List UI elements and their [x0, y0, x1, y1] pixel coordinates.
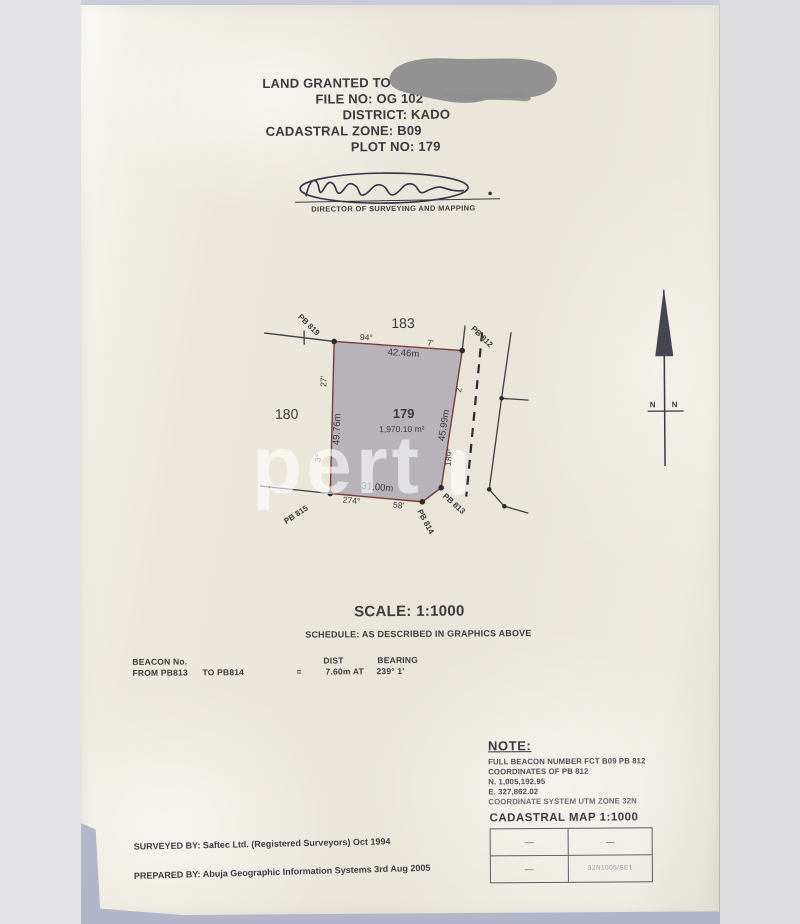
note-line-3: N. 1,005,192.95: [488, 777, 545, 787]
cadastral-zone-line: CADASTRAL ZONE: B09: [266, 123, 422, 139]
beacon-label-pb819: PB 819: [296, 312, 322, 338]
adjacent-plot-183: 183: [391, 315, 415, 331]
beacon-table-equals: =: [296, 667, 301, 677]
granted-to-line: LAND GRANTED TO: [262, 75, 391, 91]
cadastral-cell-r1c1: —: [491, 829, 569, 856]
prepared-by-line: PREPARED BY: Abuja Geographic Informatio…: [134, 863, 431, 881]
extension-line-topleft: [264, 332, 334, 341]
bearing-min-left: 27': [318, 375, 329, 387]
distance-top: 42.46m: [387, 347, 419, 360]
boundary-node: [502, 504, 507, 509]
north-label-left: N: [650, 400, 656, 409]
beacon-label-pb813: PB 813: [441, 492, 467, 517]
cadastral-cell-r2c2: 32N1005/SE1: [569, 855, 652, 882]
plot-no-line: PLOT NO: 179: [351, 139, 441, 155]
redaction-scribble: [382, 54, 562, 110]
beacon-dot-pb819: [331, 339, 337, 345]
note-line-4: E. 327,862.02: [488, 787, 538, 797]
schedule-label: SCHEDULE: AS DESCRIBED IN GRAPHICS ABOVE: [305, 628, 531, 640]
beacon-table-from: FROM PB813: [132, 667, 187, 677]
scanned-survey-document: LAND GRANTED TO FILE NO: OG 102 DISTRICT…: [0, 0, 800, 924]
signatory-title: DIRECTOR OF SURVEYING AND MAPPING: [311, 203, 475, 213]
watermark-partial-letter: [451, 450, 465, 495]
note-line-2: COORDINATES OF PB 812: [488, 767, 588, 777]
beacon-table-col-bearing: BEARING: [377, 655, 418, 665]
scale-label: SCALE: 1:1000: [354, 603, 465, 621]
beacon-table-bearing-value: 239° 1': [376, 666, 404, 676]
beacon-table-dist-value: 7.60m AT: [325, 666, 364, 676]
dashed-road-line: [465, 332, 483, 496]
boundary-node: [499, 396, 504, 401]
note-line-1: FULL BEACON NUMBER FCT B09 PB 812: [488, 756, 645, 767]
cadastral-cell-r2c1: —: [491, 855, 569, 882]
beacon-label-pb812: PB 812: [469, 324, 495, 350]
extension-line-topright: [462, 326, 465, 351]
bearing-min-right: 2': [453, 385, 464, 393]
note-title: NOTE:: [488, 738, 532, 753]
site-watermark: pert: [252, 419, 423, 513]
cadastral-cell-r1c2: —: [569, 828, 652, 855]
bearing-deg-top: 94°: [360, 332, 373, 343]
north-arrow-head: [655, 288, 673, 356]
cadastral-map-title: CADASTRAL MAP 1:1000: [489, 811, 638, 824]
north-label-right: N: [672, 400, 678, 409]
note-line-5: COORDINATE SYSTEM UTM ZONE 32N: [488, 796, 636, 807]
beacon-dot-pb812: [459, 348, 465, 354]
road-boundary-line: [488, 332, 528, 513]
beacon-table-col-beacon: BEACON No.: [132, 656, 187, 666]
boundary-node: [487, 487, 492, 492]
road-branch-line: [502, 398, 529, 400]
cadastral-map-table: — — — 32N1005/SE1: [490, 827, 653, 883]
north-arrow: N N: [637, 278, 698, 473]
surveyed-by-line: SURVEYED BY: Saftec Ltd. (Registered Sur…: [134, 836, 391, 851]
bearing-min-top: 7': [427, 338, 434, 348]
beacon-dot-pb813: [438, 485, 444, 491]
beacon-table-to: TO PB814: [202, 667, 244, 677]
beacon-table-col-dist: DIST: [323, 655, 343, 665]
